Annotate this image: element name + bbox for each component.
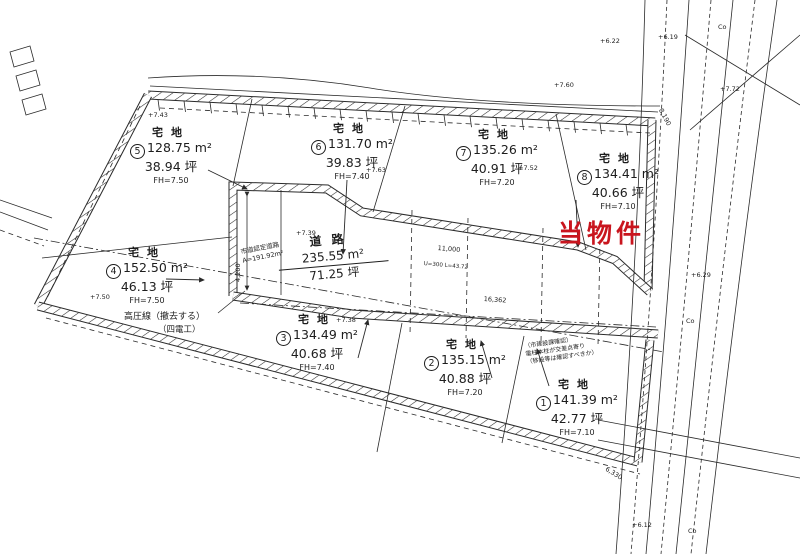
parcel-area: 7135.26 m² xyxy=(438,142,556,161)
parcel-number: 8 xyxy=(577,170,592,185)
parcel-number: 3 xyxy=(276,331,291,346)
parcel-tsubo: 38.94 坪 xyxy=(112,159,230,175)
parcel-area: 3134.49 m² xyxy=(258,327,376,346)
spot-elevation: +6.29 xyxy=(691,271,711,279)
parcel-area: 8134.41 m² xyxy=(562,166,674,185)
spot-elevation: +6.12 xyxy=(632,521,652,529)
surface-mark: Co xyxy=(718,23,727,31)
spot-elevation: +7.50 xyxy=(90,293,110,301)
dimension-label: 16,362 xyxy=(483,295,506,305)
parcel-type: 宅地 xyxy=(258,313,376,327)
dimension-label: 4,200 xyxy=(234,263,242,282)
parcel-area: 1141.39 m² xyxy=(518,392,636,411)
spot-elevation: +6.19 xyxy=(658,33,678,41)
spot-elevation: +7.63 xyxy=(366,166,386,174)
parcel-type: 宅地 xyxy=(293,122,411,136)
parcel-label-2: 宅地 2135.15 m² 40.88 坪 FH=7.20 xyxy=(406,338,524,398)
parcel-number: 5 xyxy=(130,144,145,159)
parcel-tsubo: 39.83 坪 xyxy=(293,155,411,171)
surface-mark: Co xyxy=(688,527,697,535)
parcel-tsubo: 40.88 坪 xyxy=(406,371,524,387)
spot-elevation: +7.39 xyxy=(296,229,316,237)
parcel-label-5: 宅地 5128.75 m² 38.94 坪 FH=7.50 xyxy=(112,126,230,186)
spot-elevation: +7.43 xyxy=(148,111,168,119)
parcel-fh: FH=7.20 xyxy=(438,178,556,188)
spot-elevation: +7.38 xyxy=(336,316,356,324)
parcel-fh: FH=7.40 xyxy=(293,172,411,182)
parcel-tsubo: 40.66 坪 xyxy=(562,185,674,201)
parcel-fh: FH=7.40 xyxy=(258,363,376,373)
parcel-type: 宅地 xyxy=(562,152,674,166)
parcel-label-7: 宅地 7135.26 m² 40.91 坪 FH=7.20 xyxy=(438,128,556,188)
parcel-area: 5128.75 m² xyxy=(112,140,230,159)
parcel-type: 宅地 xyxy=(112,126,230,140)
road-label: 道路 235.55 m² 71.25 坪 xyxy=(276,227,390,287)
power-line-note: 高圧線（撤去する） xyxy=(124,309,205,322)
parcel-area: 6131.70 m² xyxy=(293,136,411,155)
parcel-type: 宅地 xyxy=(518,378,636,392)
parcel-fh: FH=7.10 xyxy=(518,428,636,438)
parcel-tsubo: 40.91 坪 xyxy=(438,161,556,177)
parcel-type: 宅地 xyxy=(406,338,524,352)
spot-elevation: +7.72 xyxy=(720,85,740,93)
parcel-number: 7 xyxy=(456,146,471,161)
parcel-type: 宅地 xyxy=(88,246,206,260)
parcel-type: 宅地 xyxy=(438,128,556,142)
parcel-number: 4 xyxy=(106,264,121,279)
parcel-tsubo: 42.77 坪 xyxy=(518,411,636,427)
surface-mark: Co xyxy=(686,317,695,325)
parcel-fh: FH=7.10 xyxy=(562,202,674,212)
parcel-label-8: 宅地 8134.41 m² 40.66 坪 FH=7.10 xyxy=(562,152,674,212)
parcel-label-6: 宅地 6131.70 m² 39.83 坪 FH=7.40 xyxy=(293,122,411,182)
site-plan-drawing: 宅地 5128.75 m² 38.94 坪 FH=7.50 宅地 6131.70… xyxy=(0,0,800,554)
spot-elevation: +7.60 xyxy=(554,81,574,89)
parcel-area: 4152.50 m² xyxy=(88,260,206,279)
parcel-fh: FH=7.50 xyxy=(112,176,230,186)
parcel-area: 2135.15 m² xyxy=(406,352,524,371)
parcel-fh: FH=7.20 xyxy=(406,388,524,398)
parcel-tsubo: 40.68 坪 xyxy=(258,346,376,362)
spot-elevation: +7.52 xyxy=(518,164,538,172)
parcel-label-3: 宅地 3134.49 m² 40.68 坪 FH=7.40 xyxy=(258,313,376,373)
parcel-label-1: 宅地 1141.39 m² 42.77 坪 FH=7.10 xyxy=(518,378,636,438)
parcel-number: 2 xyxy=(424,356,439,371)
spot-elevation: +6.22 xyxy=(600,37,620,45)
power-line-note-sub: （四電工） xyxy=(158,323,201,335)
parcel-number: 1 xyxy=(536,396,551,411)
parcel-number: 6 xyxy=(311,140,326,155)
subject-property-label: 当物件 xyxy=(558,214,645,250)
